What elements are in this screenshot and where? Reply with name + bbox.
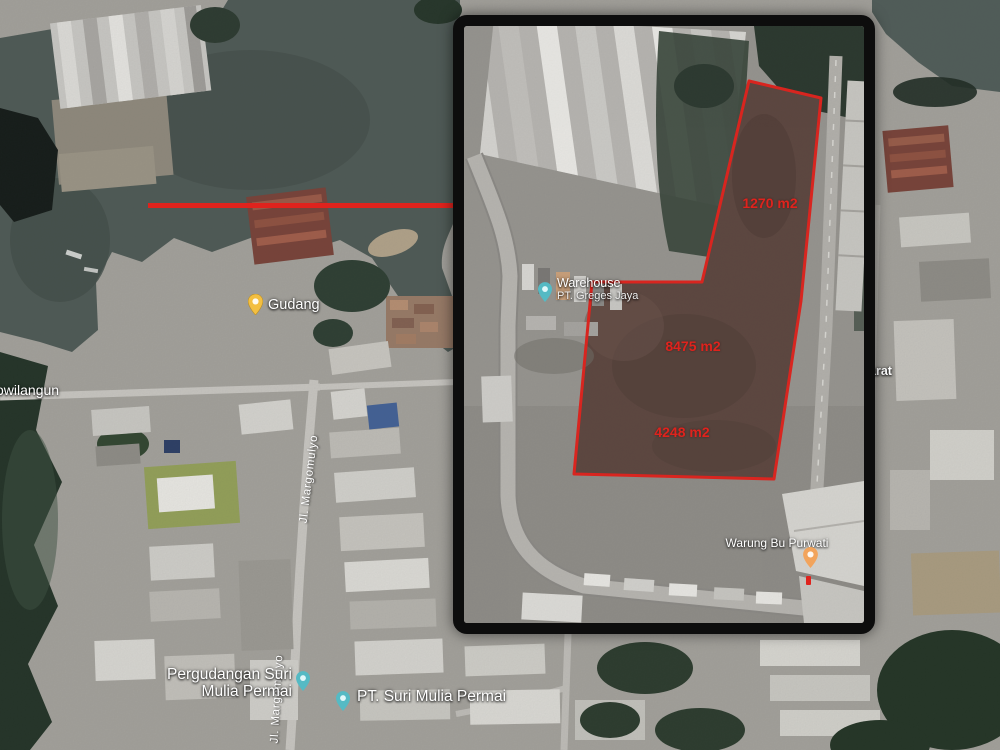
map-label-pt-suri-mulia: PT. Suri Mulia Permai <box>357 689 506 705</box>
map-label-osowilangun: owilangun <box>0 383 59 398</box>
red-tick-mark <box>806 576 811 585</box>
warehouse-name: Warehouse <box>557 276 638 290</box>
inset-label-warehouse: Warehouse PT. Greges Jaya <box>557 276 638 303</box>
area-label-top: 1270 m2 <box>742 195 797 211</box>
map-label-pergudangan-line1: Pergudangan Suri <box>160 666 292 683</box>
inset-zoom-panel: 1270 m2 8475 m2 4248 m2 Warehouse PT. Gr… <box>453 15 875 634</box>
warung-pin-icon <box>803 547 818 568</box>
connector-line <box>148 203 458 208</box>
map-label-pergudangan: Pergudangan Suri Mulia Permai <box>160 666 292 701</box>
warehouse-company: PT. Greges Jaya <box>557 290 638 303</box>
map-label-gudang: Gudang <box>268 298 320 313</box>
area-label-bottom: 4248 m2 <box>654 424 709 440</box>
pt-suri-pin-icon <box>336 691 350 711</box>
area-label-middle: 8475 m2 <box>665 338 720 354</box>
land-listing-map: Gudang owilangun Jl. Margomulyo Jl. Marg… <box>0 0 1000 750</box>
pergudangan-pin-icon <box>296 671 310 691</box>
inset-satellite-view <box>464 26 864 623</box>
gudang-pin-icon <box>248 294 263 315</box>
map-label-pergudangan-line2: Mulia Permai <box>160 683 292 700</box>
warehouse-pin-icon <box>538 282 552 302</box>
